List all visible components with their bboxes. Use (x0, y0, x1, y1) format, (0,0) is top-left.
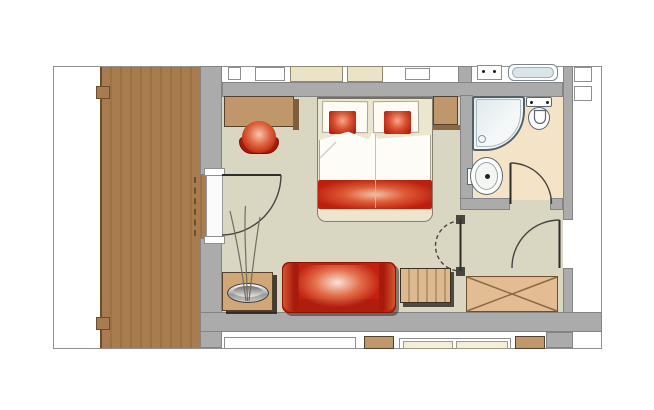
neighbor-vanity-dot-2 (493, 70, 496, 73)
sofa-arm-right (379, 263, 395, 311)
shaft-box-lower (574, 86, 592, 101)
pivot-door-jamb-bottom (456, 267, 465, 276)
balcony-door-sill-top (204, 168, 225, 176)
desk-chair-seat (242, 121, 276, 153)
deck-post-bottom (96, 317, 110, 330)
desk-3d-edge (293, 99, 299, 130)
wardrobe (466, 276, 558, 312)
nightstand-3d-edge (433, 125, 460, 130)
wall-bottom (200, 312, 602, 332)
deck-post-top (96, 86, 110, 99)
pivot-door-jamb-top (456, 215, 465, 224)
washbasin-drain-dot (485, 174, 490, 179)
neighbor-wall-stub-top (458, 66, 472, 83)
neighbor-bed-below-pillow-b (456, 341, 508, 349)
neighbor-bathtub-basin (512, 67, 554, 78)
shaft-box-upper (574, 67, 592, 82)
floor-plan (0, 0, 654, 410)
wall-stub-below (546, 332, 573, 348)
nightstand (433, 96, 458, 125)
luggage-bench (400, 268, 451, 303)
wall-right-upper (563, 66, 573, 220)
neighbor-vanity-dot-1 (482, 70, 485, 73)
neighbor-nightstand-left (364, 336, 394, 349)
toilet-tank-dot-2 (546, 101, 549, 104)
sofa-arm-left (283, 263, 299, 311)
balcony-door-sill-bottom (204, 236, 225, 244)
wall-top (222, 82, 563, 97)
shower-drain (478, 135, 486, 143)
neighbor-bed-pillow-a (290, 66, 343, 82)
neighbor-top-rect-c (405, 68, 430, 80)
bathroom-wall-bottom-left (460, 198, 510, 210)
decorative-bowl-inner (233, 286, 263, 297)
balcony-door-threshold (206, 170, 223, 243)
neighbor-top-rect-b (255, 67, 285, 81)
sofa-seat-highlight (298, 265, 380, 307)
toilet-tank-dot-1 (530, 101, 533, 104)
neighbor-bed-pillow-b (347, 66, 383, 82)
neighbor-bottom-rect (224, 337, 356, 349)
neighbor-bed-below-pillow-a (403, 341, 453, 349)
bed-cushion-left (329, 111, 356, 134)
balcony-deck (100, 67, 213, 348)
neighbor-top-rect-a (228, 67, 241, 80)
neighbor-nightstand-right (515, 336, 545, 349)
bed-cushion-right (384, 111, 411, 134)
wall-left-upper (200, 66, 222, 175)
balcony-door-outside-dash (194, 177, 196, 236)
bed-runner (318, 180, 432, 209)
bathroom-wall-bottom-right (550, 198, 563, 210)
neighbor-vanity (477, 65, 502, 80)
